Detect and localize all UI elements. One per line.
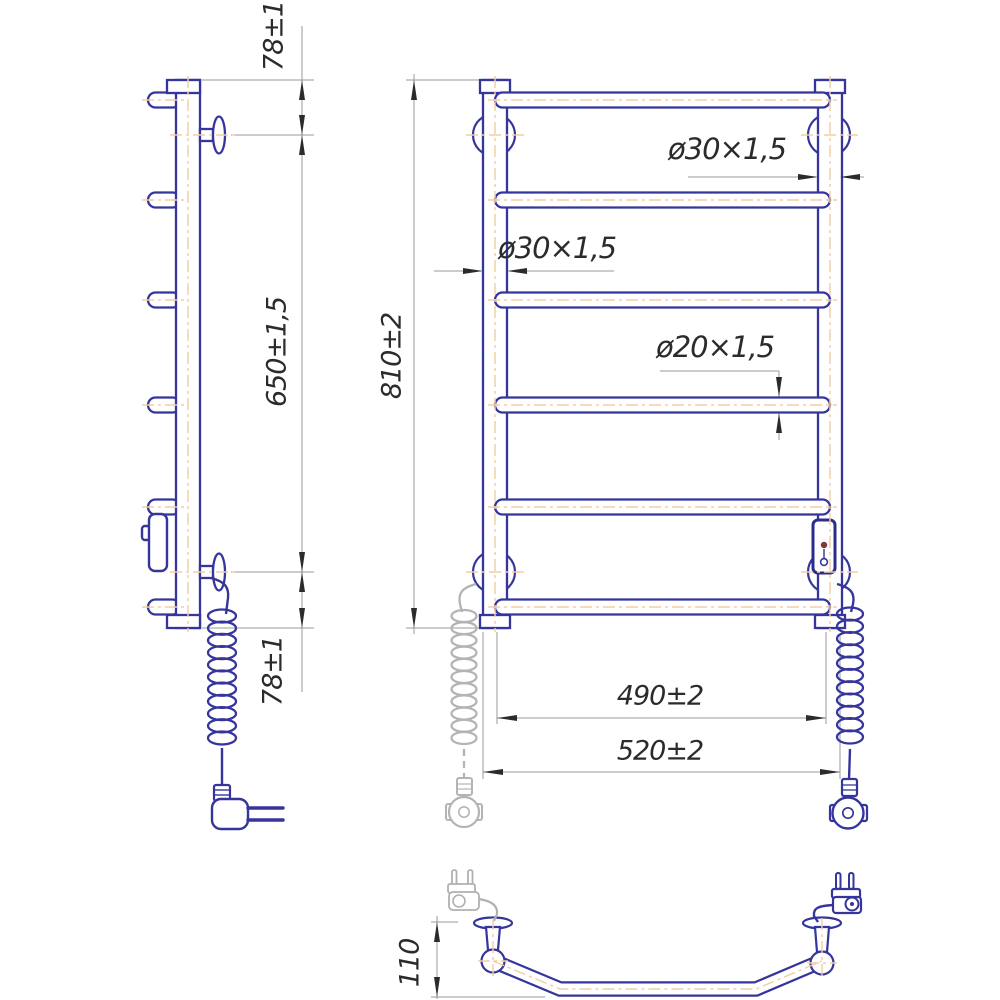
side-post-top-cap	[167, 80, 200, 93]
side-view	[142, 76, 283, 829]
dimension-arrows	[299, 80, 860, 997]
dim-overall-width: 520±2	[617, 736, 703, 767]
dim-crossbar-tube: ø20×1,5	[656, 330, 774, 364]
dim-side-top-offset: 78±1	[259, 1, 290, 71]
power-plug-front-left-phantom	[446, 778, 482, 827]
plan-view	[448, 870, 861, 989]
power-cord-front-left-phantom	[452, 584, 477, 779]
dim-front-height: 810±2	[377, 313, 408, 399]
drawing-canvas	[0, 0, 1000, 1000]
plan-right-plug	[814, 873, 861, 922]
plan-left-plug-phantom	[448, 870, 497, 921]
dim-right-post-tube: ø30×1,5	[668, 132, 786, 166]
switch-housing-side	[142, 514, 167, 571]
dim-mounting-width: 490±2	[617, 681, 703, 712]
technical-drawing-towel-rail: 78±1 650±1,5 78±1 810±2 ø30×1,5 ø30×1,5 …	[0, 0, 1000, 1000]
power-cord-side	[208, 578, 236, 787]
dim-left-post-tube: ø30×1,5	[498, 231, 616, 265]
dim-side-rail-span: 650±1,5	[262, 297, 293, 407]
power-plug-side	[212, 785, 283, 829]
switch-box	[813, 520, 835, 573]
side-post-bottom-cap	[167, 615, 200, 628]
power-plug-front-right	[830, 779, 867, 829]
dim-wall-clearance: 110	[395, 939, 426, 988]
front-view	[446, 76, 867, 829]
dim-side-bottom-offset: 78±1	[258, 636, 289, 706]
plan-tube	[493, 961, 822, 989]
